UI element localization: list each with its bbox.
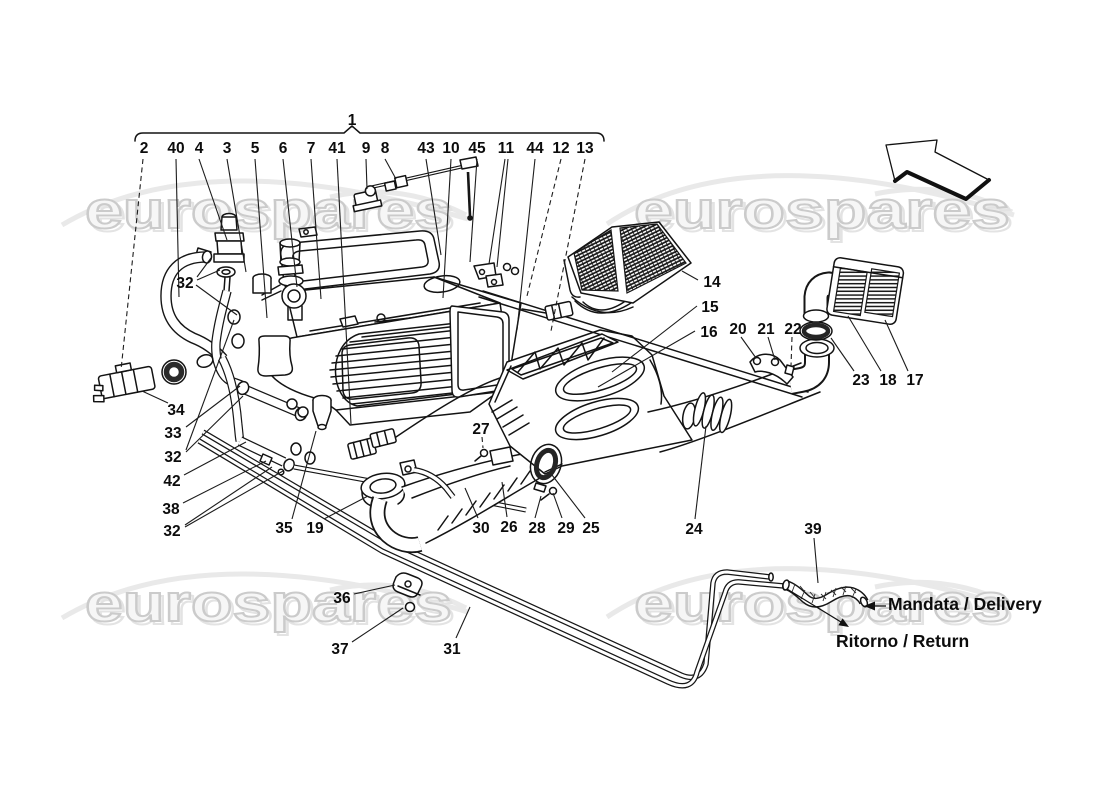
svg-text:36: 36 xyxy=(333,590,351,607)
svg-text:16: 16 xyxy=(700,324,718,341)
svg-text:17: 17 xyxy=(906,372,923,389)
svg-text:20: 20 xyxy=(729,321,746,338)
svg-text:42: 42 xyxy=(163,473,180,490)
svg-text:27: 27 xyxy=(472,421,489,438)
svg-text:5: 5 xyxy=(251,140,260,157)
svg-text:43: 43 xyxy=(417,140,435,157)
svg-text:38: 38 xyxy=(162,501,180,518)
svg-text:21: 21 xyxy=(757,321,775,338)
svg-text:44: 44 xyxy=(526,140,544,157)
svg-text:15: 15 xyxy=(701,299,719,316)
svg-text:30: 30 xyxy=(472,520,489,537)
svg-text:14: 14 xyxy=(703,274,721,291)
svg-text:Mandata / Delivery: Mandata / Delivery xyxy=(888,594,1042,614)
svg-text:45: 45 xyxy=(468,140,486,157)
svg-text:32: 32 xyxy=(176,275,193,292)
svg-text:35: 35 xyxy=(275,520,293,537)
svg-text:40: 40 xyxy=(167,140,184,157)
svg-text:33: 33 xyxy=(164,425,182,442)
svg-text:29: 29 xyxy=(557,520,575,537)
svg-text:25: 25 xyxy=(582,520,600,537)
svg-text:22: 22 xyxy=(784,321,801,338)
svg-text:39: 39 xyxy=(804,521,822,538)
svg-text:31: 31 xyxy=(443,641,461,658)
svg-text:19: 19 xyxy=(306,520,324,537)
svg-text:8: 8 xyxy=(381,140,390,157)
svg-text:1: 1 xyxy=(348,112,357,129)
svg-text:10: 10 xyxy=(442,140,459,157)
svg-text:9: 9 xyxy=(362,140,371,157)
svg-text:11: 11 xyxy=(498,140,515,157)
svg-text:24: 24 xyxy=(685,521,703,538)
svg-text:4: 4 xyxy=(195,140,204,157)
svg-text:28: 28 xyxy=(528,520,546,537)
svg-text:3: 3 xyxy=(223,140,232,157)
svg-text:23: 23 xyxy=(852,372,870,389)
svg-text:eurospares: eurospares xyxy=(85,181,452,240)
svg-text:32: 32 xyxy=(163,523,180,540)
svg-text:Ritorno / Return: Ritorno / Return xyxy=(836,631,969,651)
svg-text:32: 32 xyxy=(164,449,181,466)
svg-text:7: 7 xyxy=(307,140,316,157)
svg-text:34: 34 xyxy=(167,402,185,419)
svg-text:41: 41 xyxy=(328,140,346,157)
svg-text:12: 12 xyxy=(552,140,569,157)
svg-text:13: 13 xyxy=(576,140,594,157)
svg-text:37: 37 xyxy=(331,641,348,658)
svg-text:18: 18 xyxy=(879,372,897,389)
svg-text:2: 2 xyxy=(140,140,149,157)
svg-text:26: 26 xyxy=(500,519,518,536)
svg-text:6: 6 xyxy=(279,140,288,157)
